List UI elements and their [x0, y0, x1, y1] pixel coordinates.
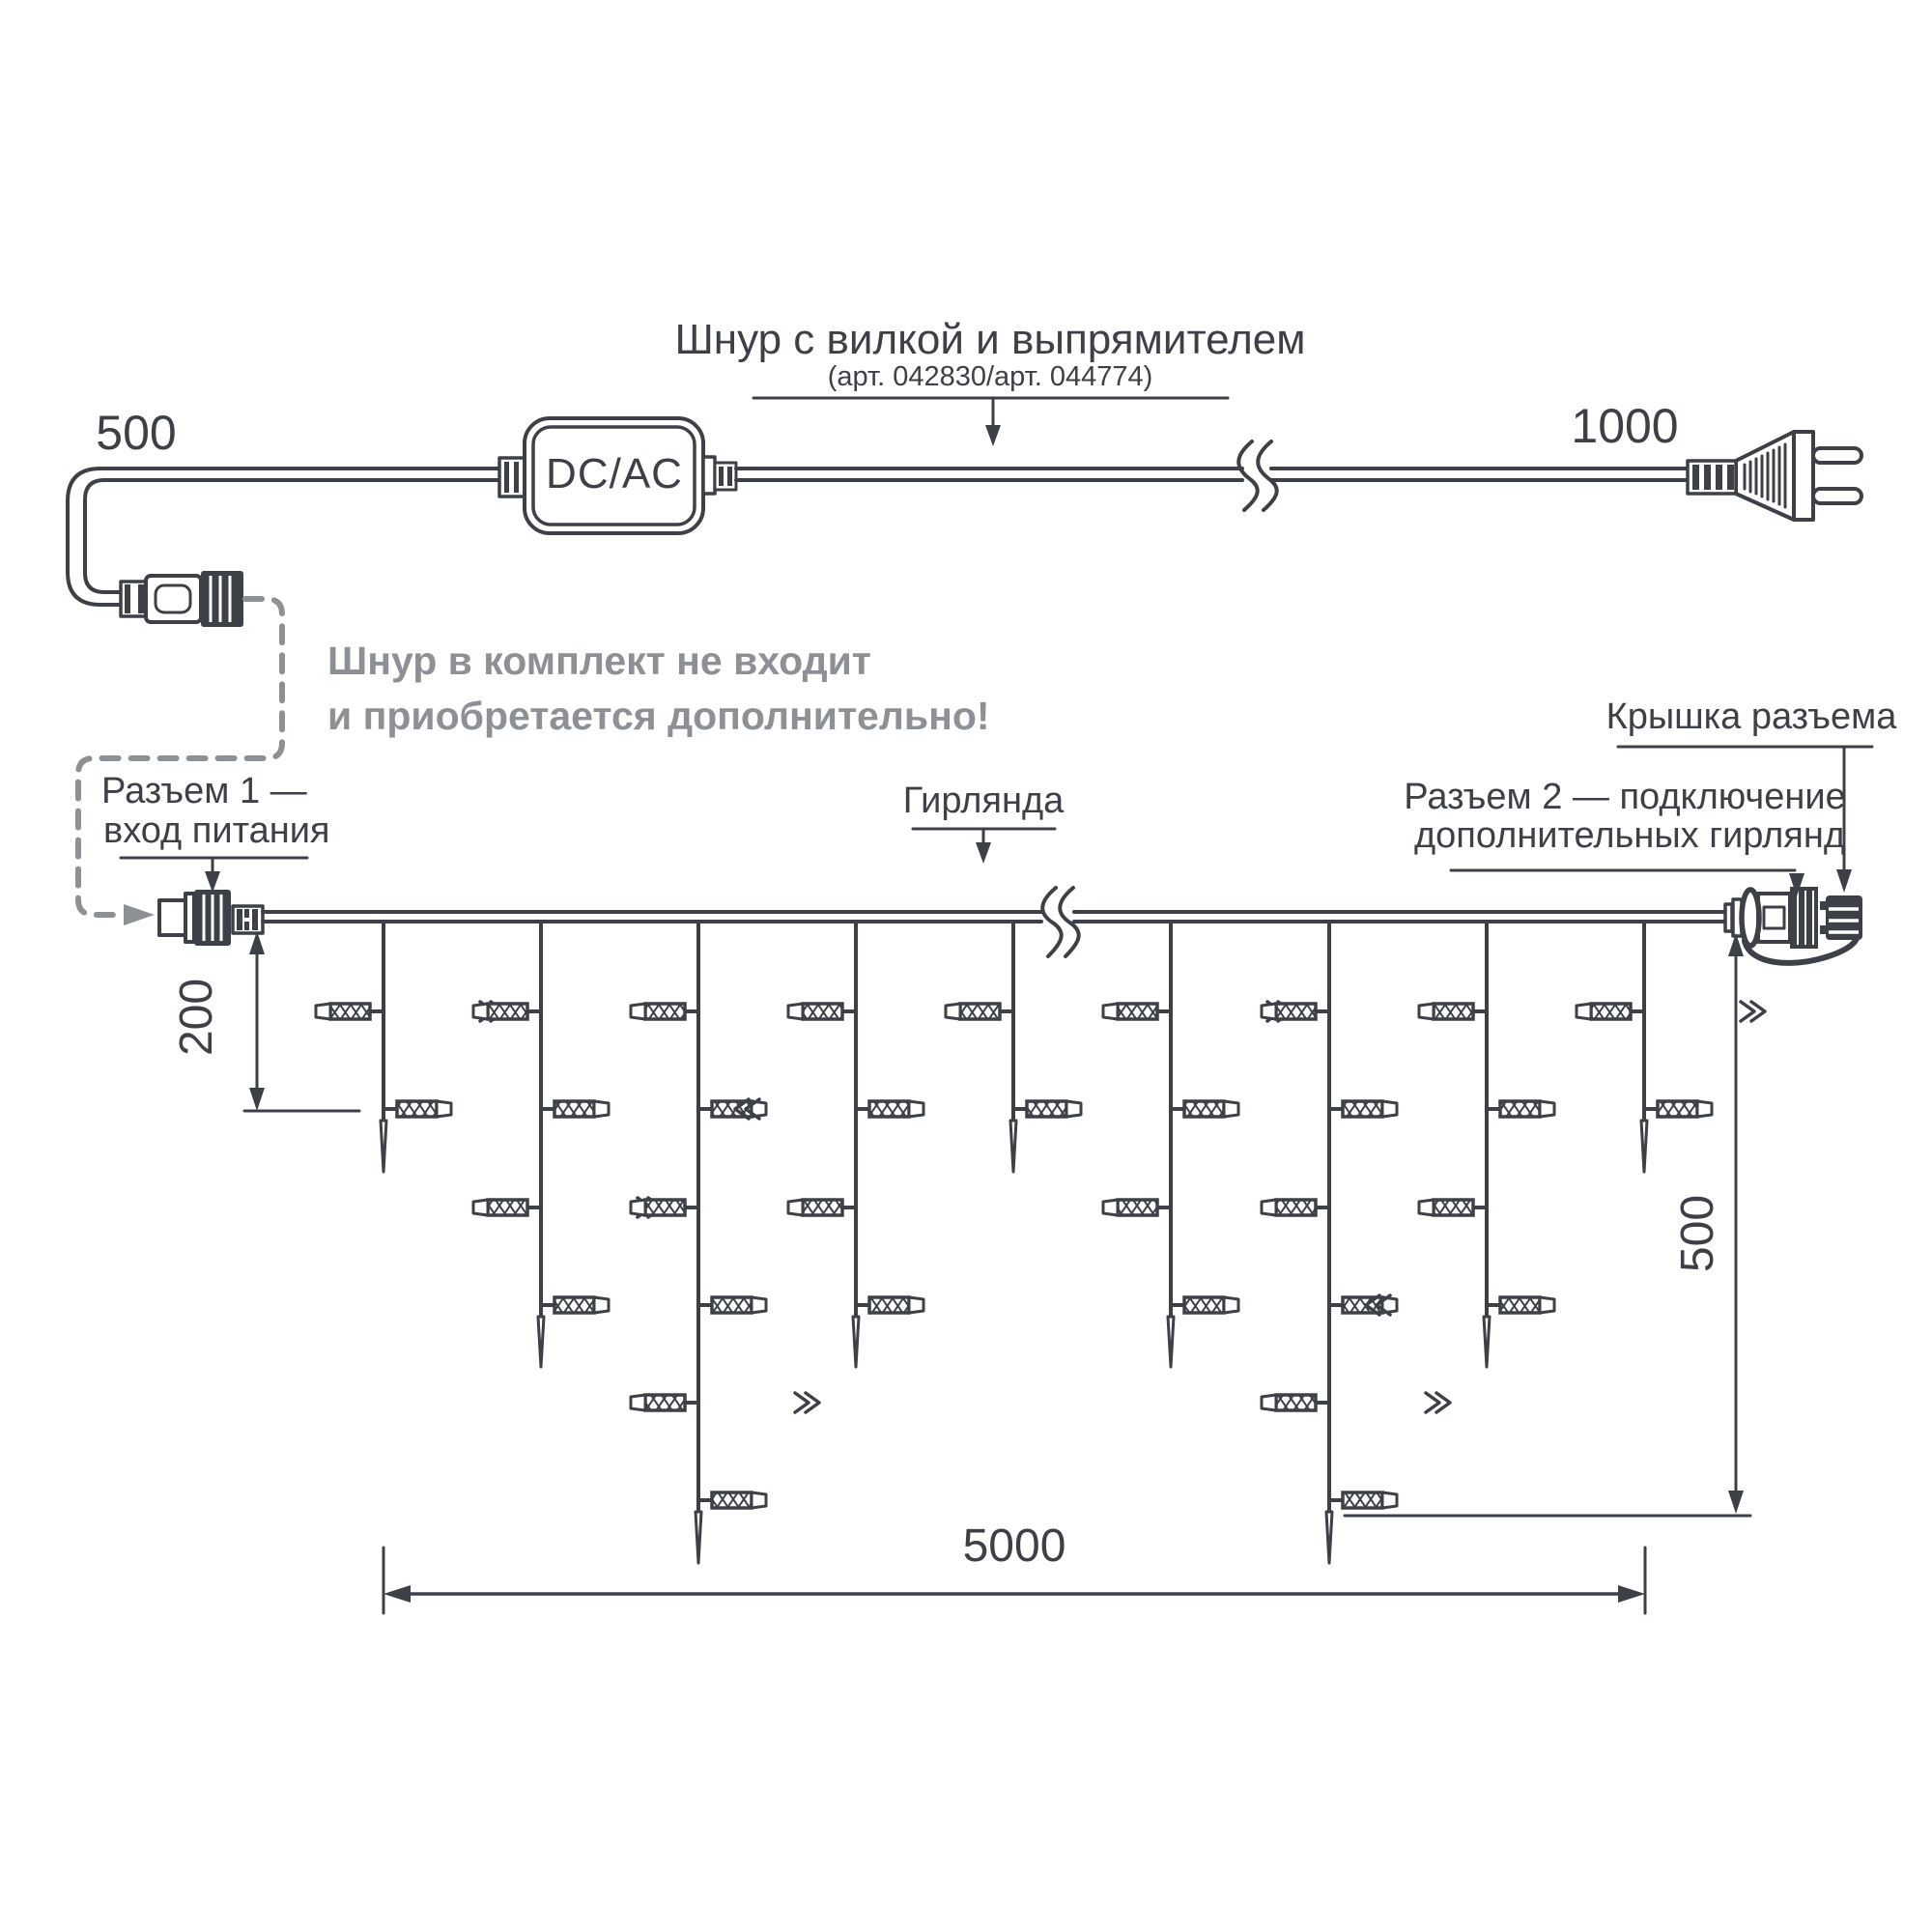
garland-label-leader — [913, 829, 1055, 864]
bulb-tip — [1103, 1200, 1118, 1215]
length-500-label: 500 — [96, 408, 176, 459]
garland-bulb — [541, 1297, 609, 1313]
bulb-tip — [473, 1004, 488, 1019]
bulb-tip — [1382, 1492, 1397, 1508]
garland-connector-2 — [1725, 887, 1862, 963]
garland-bulb — [946, 1004, 1013, 1019]
garland-bulb — [473, 1004, 541, 1019]
bulb-tip — [752, 1492, 766, 1508]
garland-bulb — [1262, 1200, 1329, 1215]
bulb-tip — [1697, 1101, 1712, 1117]
bulb-tip — [1066, 1101, 1081, 1117]
garland-drop — [473, 922, 662, 1367]
garland-bulb — [1171, 1297, 1238, 1313]
dim-500-label: 500 — [1674, 1195, 1722, 1272]
garland-bulb — [1262, 1004, 1329, 1019]
garland-bulb — [698, 1492, 766, 1508]
bulb-tip — [1224, 1101, 1238, 1117]
cord-break-symbol — [1238, 441, 1276, 510]
garland-label: Гирлянда — [903, 782, 1065, 821]
drop-needle-tip — [381, 1121, 386, 1172]
flash-bulb-marker-icon — [1741, 1002, 1765, 1021]
garland-drop — [316, 922, 504, 1172]
garland-bulb — [698, 1297, 766, 1313]
cord-output-connector — [121, 571, 243, 627]
bulb-tip — [1262, 1004, 1276, 1019]
bulb-tip — [909, 1297, 923, 1313]
bulb-tip — [788, 1004, 803, 1019]
garland-drops — [316, 922, 1765, 1563]
drop-needle-tip — [696, 1512, 701, 1563]
garland-bulb — [1103, 1200, 1171, 1215]
drop-needle-tip — [1484, 1317, 1490, 1367]
garland-bulb — [1171, 1101, 1238, 1117]
bulb-tip — [316, 1004, 330, 1019]
flash-bulb-marker-icon — [795, 1393, 819, 1412]
garland-bulb — [384, 1101, 451, 1117]
note-line-1: Шнур в комплект не входит — [327, 640, 871, 682]
cord-title: Шнур с вилкой и выпрямителем — [674, 318, 1305, 362]
power-plug — [1688, 432, 1861, 520]
bulb-tip — [1262, 1200, 1276, 1215]
drop-needle-tip — [1641, 1121, 1647, 1172]
not-included-dashed-path — [78, 599, 282, 925]
garland-bulb — [1013, 1101, 1081, 1117]
garland-bulb — [788, 1200, 856, 1215]
drop-needle-tip — [1168, 1317, 1174, 1367]
garland-drop — [1103, 922, 1292, 1367]
drop-needle-tip — [1326, 1512, 1332, 1563]
bulb-tip — [594, 1101, 609, 1117]
plug-prong-bottom — [1813, 489, 1861, 503]
dcac-label: DC/AC — [546, 452, 683, 497]
drop-needle-tip — [1010, 1121, 1016, 1172]
bulb-tip — [1540, 1101, 1554, 1117]
bulb-tip — [631, 1200, 645, 1215]
bulb-tip — [1262, 1395, 1276, 1410]
connector-cap — [1820, 895, 1862, 940]
bulb-tip — [1382, 1101, 1397, 1117]
garland-bulb — [631, 1004, 698, 1019]
garland-assembly — [159, 887, 1862, 1563]
flash-bulb-marker-icon — [1426, 1393, 1450, 1412]
note-line-2: и приобретается дополнительно! — [327, 696, 990, 737]
bulb-tip — [752, 1297, 766, 1313]
garland-bulb — [631, 1393, 819, 1412]
garland-drop — [946, 922, 1081, 1172]
garland-bulb — [1262, 1393, 1450, 1412]
diagram-canvas — [0, 0, 1932, 1932]
bulb-tip — [1577, 1004, 1591, 1019]
connector-seal-ring — [1742, 890, 1759, 946]
title-leader — [753, 398, 1228, 446]
bulb-tip — [1419, 1004, 1434, 1019]
bulb-tip — [1224, 1297, 1238, 1313]
bulb-tip — [631, 1004, 645, 1019]
garland-bulb — [541, 1101, 609, 1117]
bulb-tip — [909, 1101, 923, 1117]
length-1000-label: 1000 — [1571, 401, 1678, 452]
diagram-page: Шнур с вилкой и выпрямителем (арт. 04283… — [0, 0, 1932, 1932]
garland-bulb — [788, 1004, 856, 1019]
bulb-tip — [1540, 1297, 1554, 1313]
cap-label: Крышка разъема — [1606, 698, 1897, 737]
dashed-arrowhead — [124, 904, 155, 925]
dim-200 — [244, 931, 359, 1111]
bulb-tip — [437, 1101, 451, 1117]
bulb-tip — [473, 1200, 488, 1215]
garland-connector-1 — [159, 890, 263, 946]
garland-bulb — [1419, 1004, 1487, 1019]
garland-bulb — [1644, 1101, 1712, 1117]
garland-bulb — [1329, 1492, 1397, 1508]
bulb-tip — [788, 1200, 803, 1215]
dim-5000-label: 5000 — [963, 1522, 1066, 1571]
cord-subtitle: (арт. 042830/арт. 044774) — [828, 362, 1153, 391]
drop-needle-tip — [853, 1317, 859, 1367]
garland-bulb — [1329, 1101, 1397, 1117]
bulb-tip — [946, 1004, 960, 1019]
bulb-tip — [1103, 1004, 1118, 1019]
connector2-label-line1: Разъем 2 — подключение — [1404, 779, 1845, 817]
connector2-label-line2: дополнительных гирлянд — [1414, 817, 1845, 856]
garland-bulb — [1487, 1101, 1554, 1117]
connector1-label-line1: Разъем 1 — — [101, 773, 307, 811]
garland-bulb — [631, 1200, 698, 1215]
connector1-label-line2: вход питания — [103, 812, 330, 851]
bulb-tip — [631, 1395, 645, 1410]
bulb-tip — [594, 1297, 609, 1313]
garland-bulb — [856, 1297, 923, 1313]
connector1-leader — [121, 858, 307, 893]
drop-needle-tip — [538, 1317, 544, 1367]
garland-bulb — [1419, 1200, 1487, 1215]
dim-200-label: 200 — [173, 979, 221, 1056]
plug-prong-top — [1813, 448, 1861, 463]
bulb-tip — [1419, 1200, 1434, 1215]
